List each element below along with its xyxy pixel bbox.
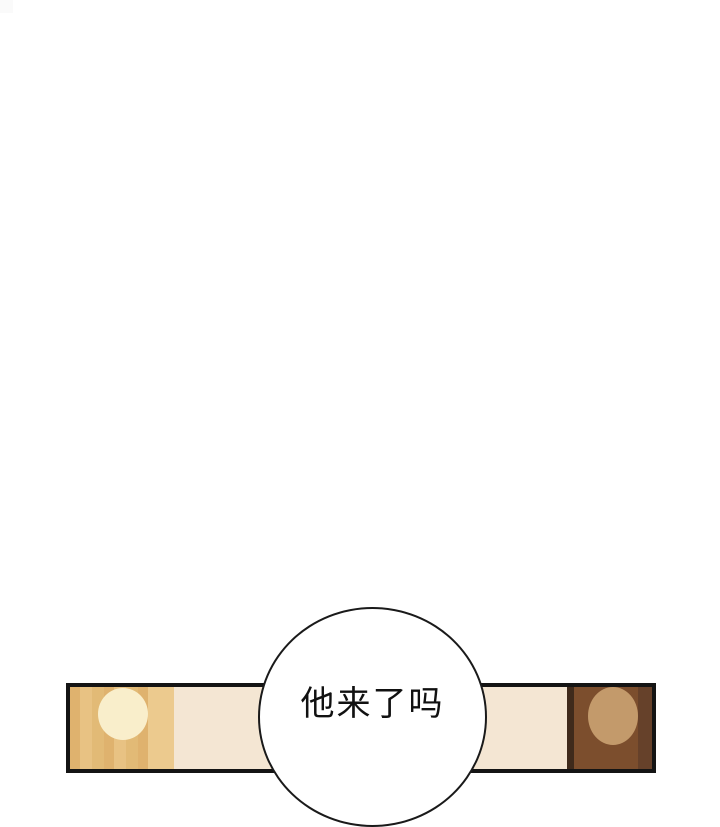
speech-bubble: 他来了吗 — [258, 607, 487, 827]
dark-edge — [638, 687, 652, 769]
dark-divider — [567, 687, 574, 769]
lamp-shape — [98, 688, 148, 740]
head-shape — [588, 687, 638, 745]
gold-band — [148, 687, 174, 769]
corner-artifact — [0, 0, 13, 13]
speech-text: 他来了吗 — [260, 684, 485, 725]
